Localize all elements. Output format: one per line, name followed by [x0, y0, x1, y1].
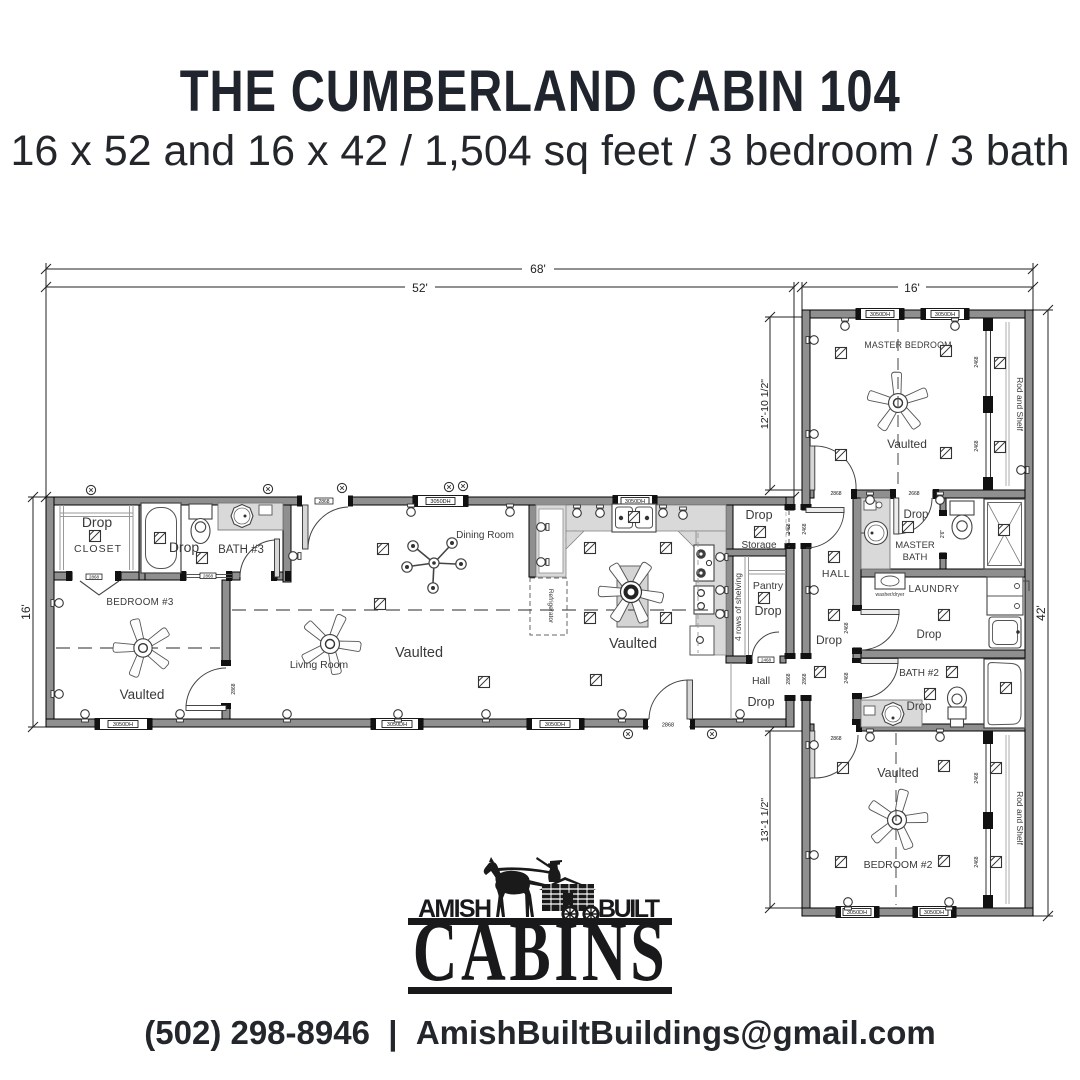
- svg-text:Drop: Drop: [82, 514, 113, 530]
- svg-text:Vaulted: Vaulted: [887, 437, 927, 451]
- svg-text:2868: 2868: [318, 499, 329, 505]
- svg-text:Drop: Drop: [917, 629, 942, 641]
- svg-text:2468: 2468: [786, 523, 792, 534]
- svg-text:4 rows of shelving: 4 rows of shelving: [733, 573, 743, 641]
- svg-text:2468: 2468: [844, 622, 850, 633]
- svg-text:2468: 2468: [844, 672, 850, 683]
- svg-text:16': 16': [904, 281, 920, 295]
- svg-text:2468: 2468: [974, 356, 980, 367]
- svg-text:Rod and Shelf: Rod and Shelf: [1015, 377, 1025, 432]
- svg-text:Rod and Shelf: Rod and Shelf: [1015, 791, 1025, 846]
- svg-text:2468: 2468: [802, 523, 808, 534]
- svg-text:BATH #3: BATH #3: [218, 544, 264, 556]
- svg-text:Vaulted: Vaulted: [609, 636, 657, 652]
- svg-text:2868: 2868: [830, 736, 841, 742]
- svg-text:2868: 2868: [802, 673, 808, 684]
- svg-text:2668: 2668: [908, 491, 919, 497]
- svg-text:Drop: Drop: [816, 633, 842, 647]
- svg-text:BATH #2: BATH #2: [899, 668, 939, 679]
- svg-text:13'-1 1/2": 13'-1 1/2": [759, 798, 771, 843]
- svg-text:3050DH: 3050DH: [113, 722, 133, 728]
- svg-text:3050DH: 3050DH: [870, 312, 890, 318]
- svg-text:HALL: HALL: [822, 568, 850, 580]
- svg-text:MASTER BEDROOM: MASTER BEDROOM: [864, 340, 951, 350]
- svg-text:Refrigerator: Refrigerator: [547, 589, 554, 624]
- svg-text:12'-10 1/2": 12'-10 1/2": [759, 379, 771, 429]
- svg-text:2868: 2868: [231, 683, 237, 694]
- svg-text:Vaulted: Vaulted: [120, 687, 165, 702]
- svg-text:2'6": 2'6": [940, 530, 946, 539]
- svg-text:Drop: Drop: [904, 509, 929, 521]
- svg-text:3050DH: 3050DH: [935, 312, 955, 318]
- svg-text:2468: 2468: [761, 658, 772, 663]
- svg-text:Living Room: Living Room: [290, 659, 349, 671]
- svg-text:68': 68': [530, 262, 546, 276]
- svg-text:2868: 2868: [830, 491, 841, 497]
- svg-text:Drop: Drop: [754, 604, 781, 618]
- svg-text:2468: 2468: [974, 772, 980, 783]
- svg-text:2868: 2868: [786, 673, 792, 684]
- svg-text:Vaulted: Vaulted: [877, 766, 919, 780]
- svg-text:Drop: Drop: [169, 539, 200, 555]
- svg-text:2468: 2468: [974, 856, 980, 867]
- svg-text:LAUNDRY: LAUNDRY: [908, 584, 959, 595]
- svg-text:16': 16': [19, 604, 33, 620]
- svg-text:2868: 2868: [89, 575, 100, 580]
- svg-text:3050DH: 3050DH: [430, 499, 450, 505]
- svg-text:52': 52': [412, 281, 428, 295]
- svg-text:42': 42': [1034, 605, 1048, 621]
- svg-text:Hall: Hall: [752, 675, 770, 687]
- svg-text:Pantry: Pantry: [753, 580, 784, 592]
- svg-text:Storage: Storage: [741, 540, 776, 551]
- svg-text:2468: 2468: [974, 440, 980, 451]
- svg-text:2868: 2868: [203, 574, 214, 579]
- svg-text:Vaulted: Vaulted: [395, 645, 443, 661]
- svg-text:BEDROOM #2: BEDROOM #2: [864, 859, 933, 871]
- svg-text:3050DH: 3050DH: [545, 722, 565, 728]
- svg-text:Drop: Drop: [907, 701, 932, 713]
- svg-text:Drop: Drop: [747, 695, 774, 709]
- svg-text:washer/dryer: washer/dryer: [876, 592, 905, 598]
- svg-text:2868: 2868: [662, 723, 674, 729]
- svg-text:MASTER: MASTER: [895, 540, 935, 551]
- svg-text:BEDROOM #3: BEDROOM #3: [106, 597, 173, 608]
- svg-text:BATH: BATH: [903, 552, 928, 563]
- svg-text:Dining Room: Dining Room: [456, 530, 514, 541]
- svg-text:CLOSET: CLOSET: [74, 543, 122, 555]
- svg-text:Drop: Drop: [745, 508, 772, 522]
- svg-text:3050DH: 3050DH: [387, 722, 407, 728]
